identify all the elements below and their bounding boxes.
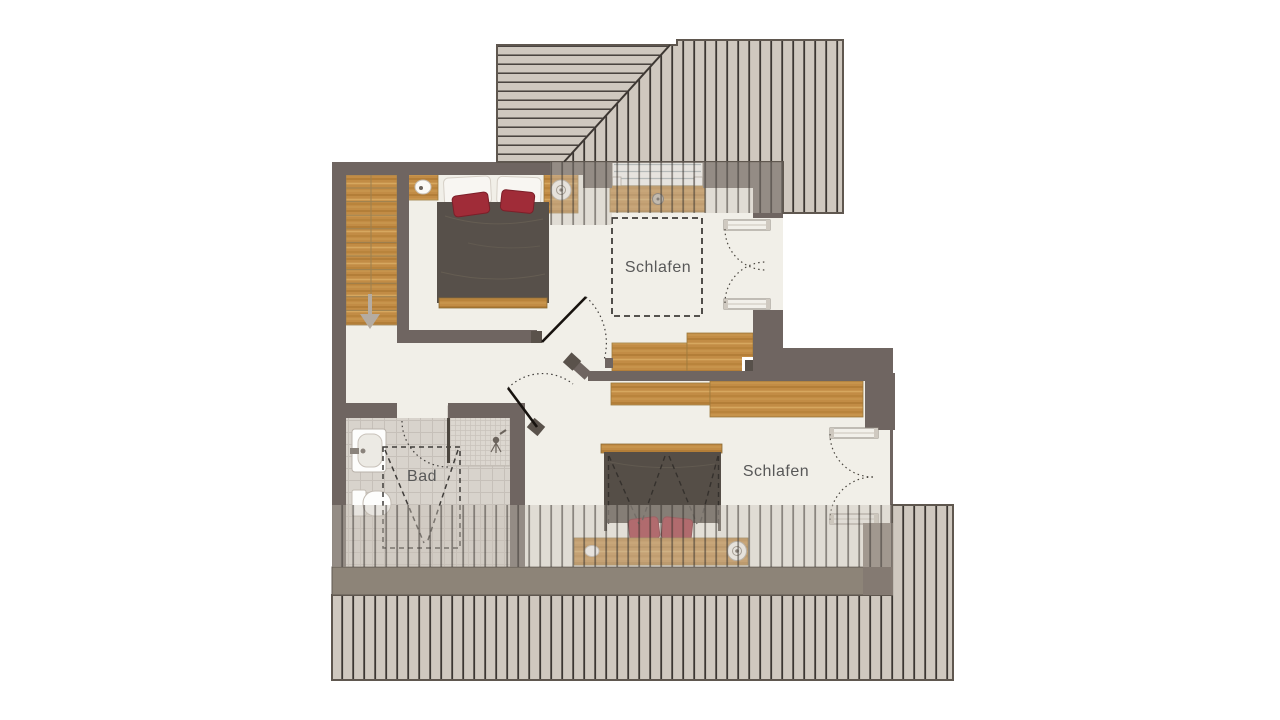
roof-eave-band [332,567,892,595]
wall [753,310,783,373]
bed-headboard [601,444,722,453]
tap-icon [350,448,359,454]
window [724,299,770,309]
lamp-icon [415,180,431,194]
cabinet [612,343,687,373]
roof-overlay [612,162,783,213]
sink [350,429,386,472]
wall-cap [531,331,542,343]
window [724,220,770,230]
cabinet [611,383,710,405]
floor-plan-canvas: Schlafen Schlafen Bad [0,0,1280,720]
wall [397,168,409,340]
staircase [346,175,397,329]
window [830,428,878,438]
room-label-bedroom1: Schlafen [625,259,691,276]
floor-plan: Schlafen Schlafen Bad [0,0,1280,720]
wardrobe [710,381,863,417]
wall [397,330,537,343]
roof-overlay [332,505,892,567]
wall [865,373,895,430]
wall [448,403,512,418]
red-pillow [500,189,535,213]
bed-foot-rail [439,298,547,308]
roof-overlay [550,162,612,225]
room-label-bedroom2: Schlafen [743,463,809,480]
red-pillow [452,192,491,218]
wall [332,403,397,418]
shower-partition [447,418,450,463]
wall [588,371,865,381]
duvet [437,202,549,303]
wall [332,162,583,175]
wall-cap [605,358,613,368]
room-label-bathroom: Bad [407,468,437,485]
